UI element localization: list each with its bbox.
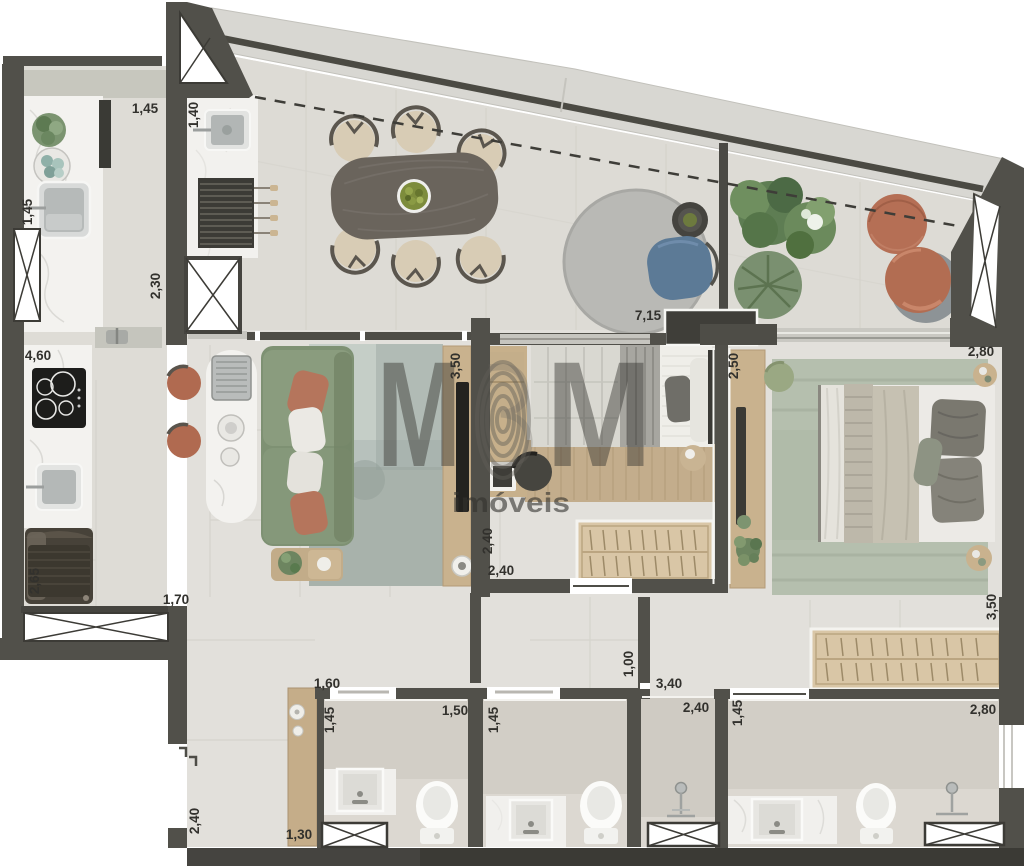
svg-text:M: M — [546, 330, 652, 498]
svg-text:1,30: 1,30 — [286, 827, 312, 842]
svg-text:imóveis: imóveis — [452, 487, 570, 518]
svg-text:1,45: 1,45 — [322, 706, 337, 733]
svg-text:2,30: 2,30 — [148, 273, 163, 299]
svg-text:2,65: 2,65 — [27, 567, 42, 594]
svg-text:1,40: 1,40 — [186, 102, 201, 128]
svg-text:1,00: 1,00 — [621, 651, 636, 677]
svg-text:1,45: 1,45 — [132, 101, 159, 116]
svg-text:1,70: 1,70 — [163, 592, 189, 607]
svg-text:1,45: 1,45 — [20, 198, 35, 225]
svg-text:4,60: 4,60 — [25, 348, 51, 363]
svg-text:2,80: 2,80 — [970, 702, 996, 717]
svg-text:1,45: 1,45 — [486, 706, 501, 733]
svg-text:3,50: 3,50 — [984, 594, 999, 620]
svg-text:2,40: 2,40 — [480, 528, 495, 554]
svg-text:2,80: 2,80 — [968, 344, 994, 359]
svg-text:1,50: 1,50 — [442, 703, 468, 718]
svg-text:1,45: 1,45 — [730, 699, 745, 726]
svg-text:2,50: 2,50 — [726, 353, 741, 379]
svg-text:3,50: 3,50 — [448, 353, 463, 379]
svg-text:3,40: 3,40 — [656, 676, 682, 691]
svg-text:1,60: 1,60 — [314, 676, 340, 691]
svg-text:2,40: 2,40 — [683, 700, 709, 715]
svg-text:2,40: 2,40 — [488, 563, 514, 578]
svg-text:7,15: 7,15 — [635, 308, 662, 323]
svg-text:2,40: 2,40 — [187, 808, 202, 834]
